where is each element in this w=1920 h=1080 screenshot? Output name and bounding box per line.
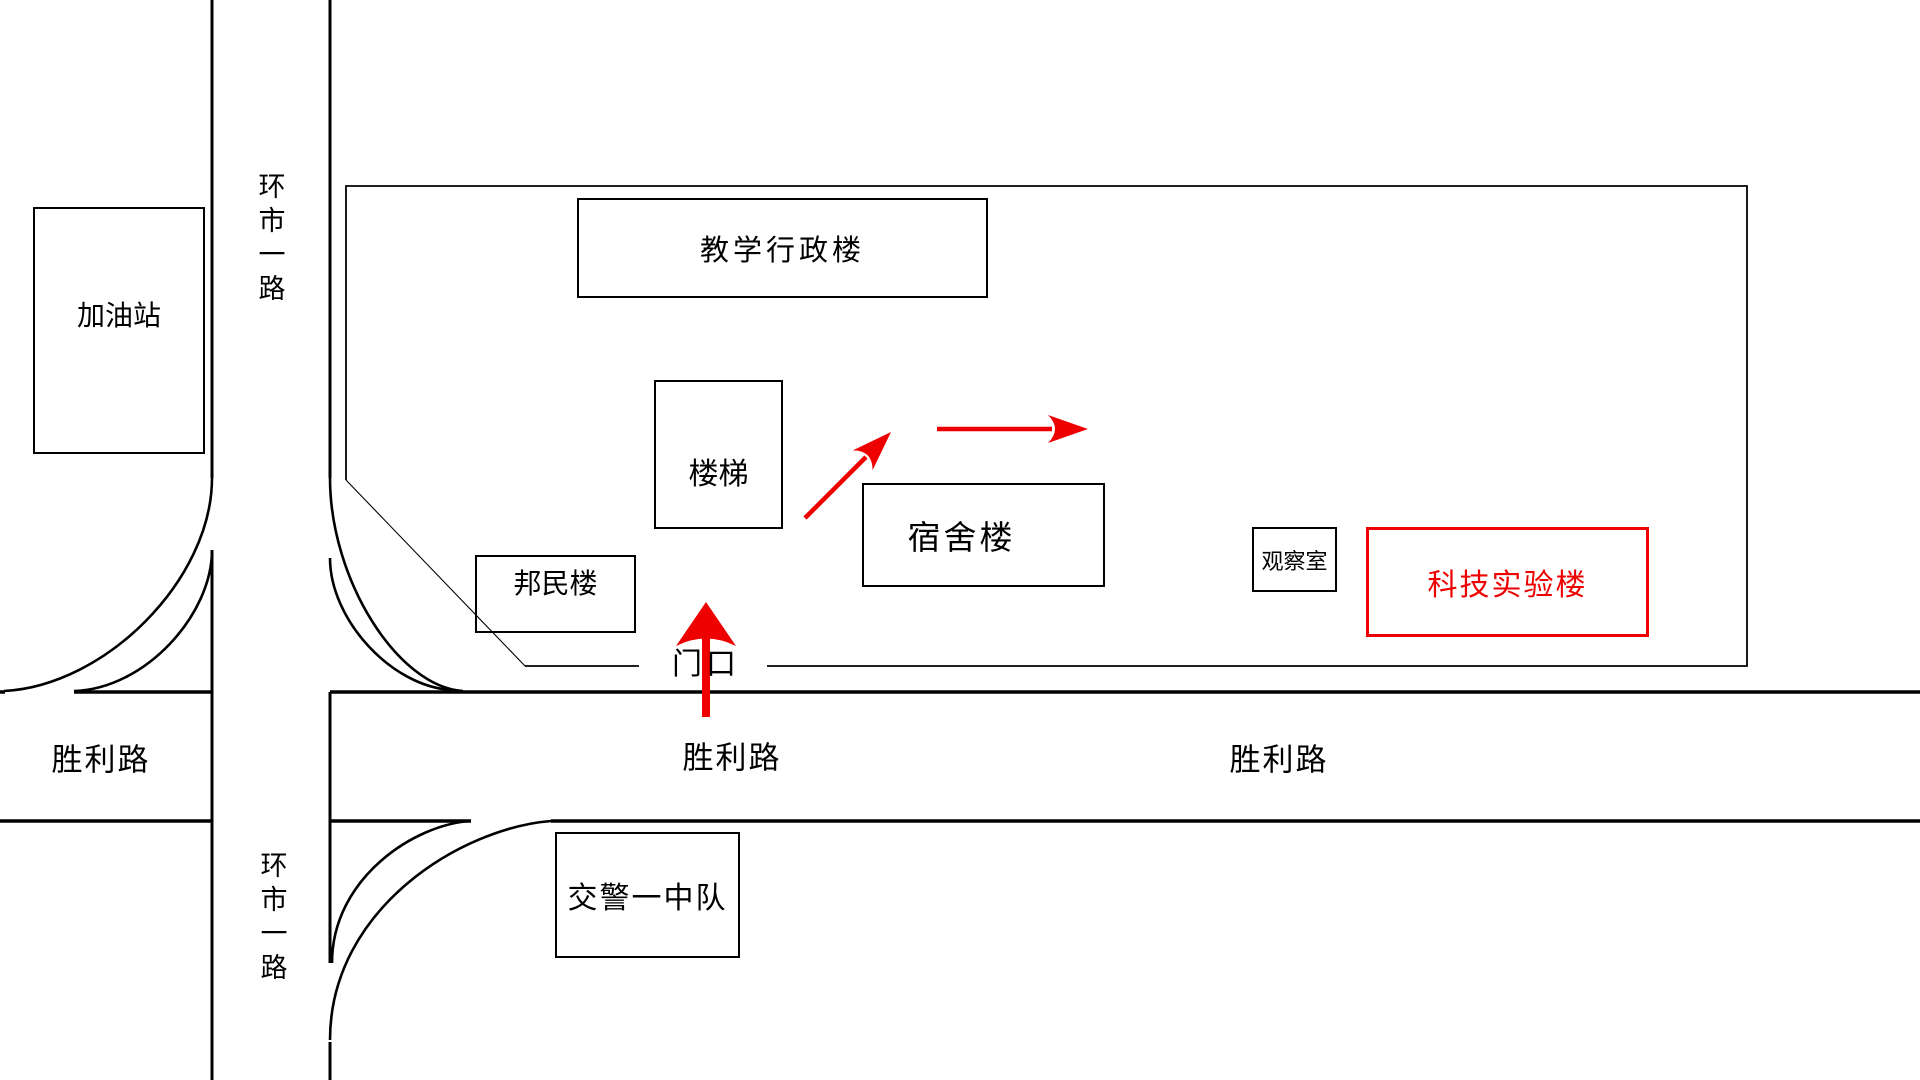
building-stairs: 楼梯 <box>654 380 783 529</box>
building-observation-room: 观察室 <box>1252 527 1337 592</box>
building-teaching-admin-label: 教学行政楼 <box>700 227 865 269</box>
shengli-road-label-east: 胜利路 <box>1230 735 1329 780</box>
building-dormitory-label: 宿舍楼 <box>908 511 1016 559</box>
building-stairs-label: 楼梯 <box>689 449 749 493</box>
huanshi-road-label-north: 环市一路 <box>251 172 290 308</box>
junction-curve-nw-inner <box>74 550 212 691</box>
building-bangmin-label: 邦民楼 <box>513 562 597 602</box>
campus-location-map: 加油站 教学行政楼 楼梯 邦民楼 宿舍楼 观察室 科技实验楼 交警一中队 门口 … <box>0 0 1920 1080</box>
building-sci-tech-lab-label: 科技实验楼 <box>1428 560 1588 604</box>
building-traffic-police-squad-1-label: 交警一中队 <box>568 873 728 917</box>
huanshi-road-label-south: 环市一路 <box>253 851 292 987</box>
junction-curve-ne-inner <box>330 558 452 690</box>
building-bangmin: 邦民楼 <box>475 555 636 633</box>
building-gas-station: 加油站 <box>33 207 205 454</box>
junction-curve-se-inner <box>332 821 471 963</box>
junction-curve-se-outer <box>330 821 551 1040</box>
shengli-road-label-west: 胜利路 <box>52 735 151 780</box>
shengli-road-label-center: 胜利路 <box>683 733 782 778</box>
building-traffic-police-squad-1: 交警一中队 <box>555 832 740 958</box>
arrow-right-icon-head <box>1048 415 1088 443</box>
building-teaching-admin: 教学行政楼 <box>577 198 988 298</box>
building-dormitory: 宿舍楼 <box>862 483 1105 587</box>
junction-curve-ne-outer <box>330 478 463 691</box>
building-gas-station-label: 加油站 <box>77 294 161 334</box>
building-sci-tech-lab-highlighted: 科技实验楼 <box>1366 527 1649 637</box>
junction-curve-nw-outer <box>4 478 212 691</box>
gate-label: 门口 <box>672 639 740 683</box>
arrow-up-right-icon <box>805 457 866 518</box>
building-observation-room-label: 观察室 <box>1261 544 1327 576</box>
